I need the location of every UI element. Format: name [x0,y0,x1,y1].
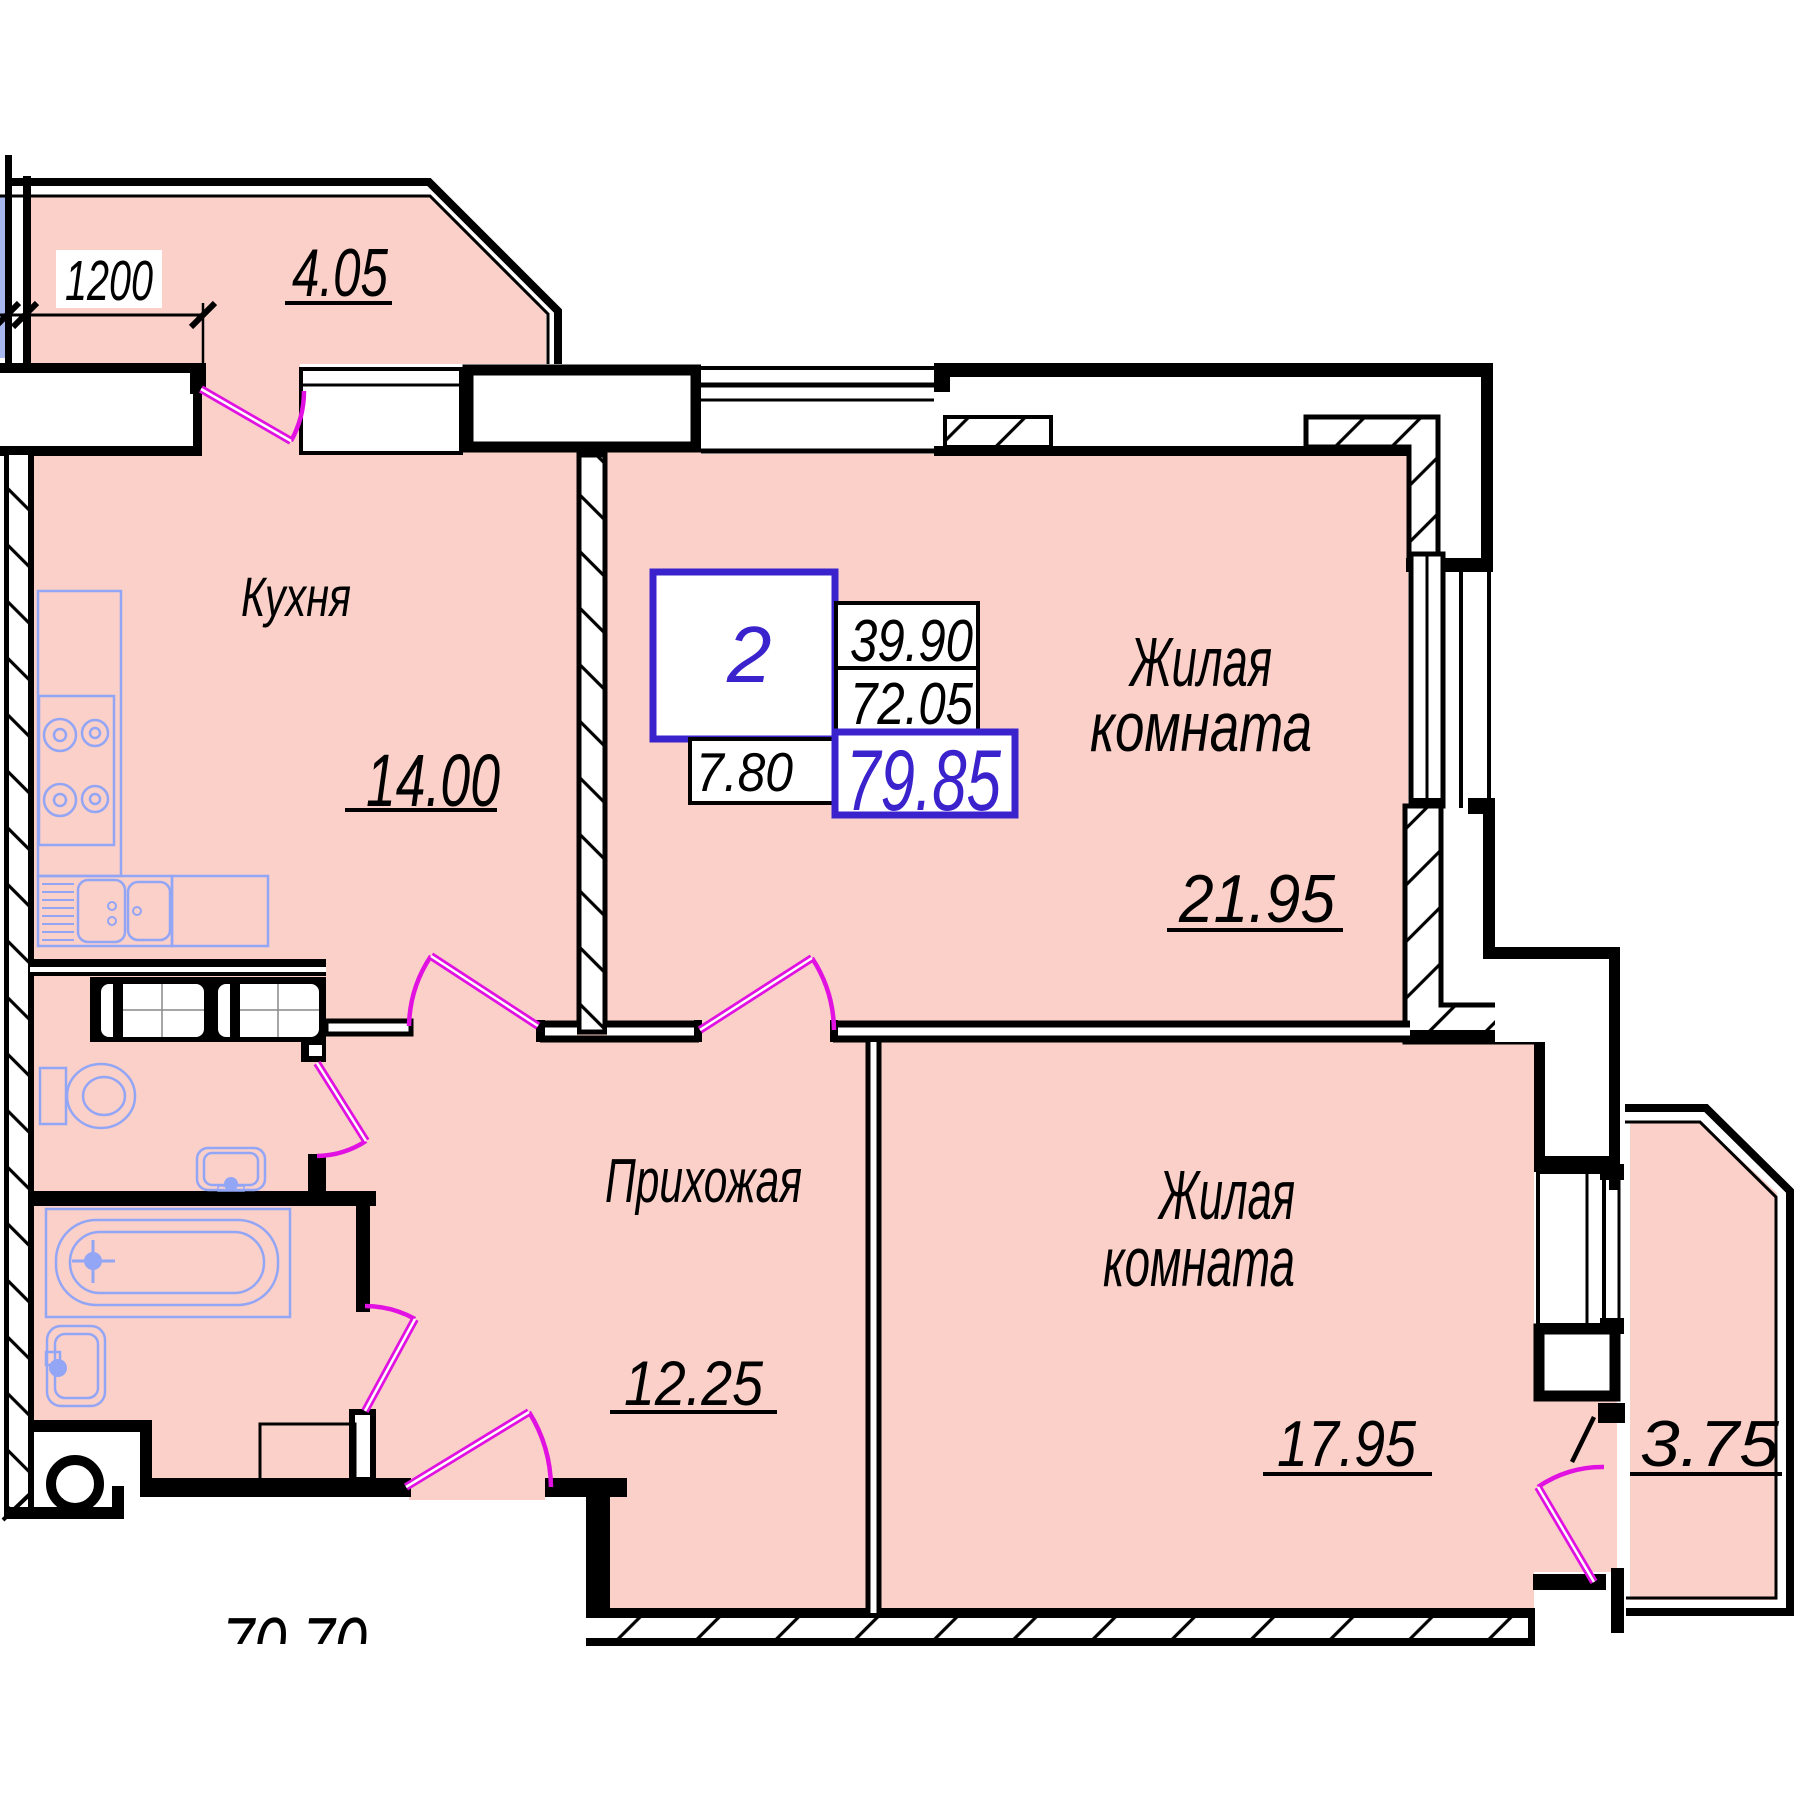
svg-text:3.75: 3.75 [1640,1407,1780,1480]
svg-text:Кухня: Кухня [241,565,351,628]
svg-text:комната: комната [1103,1223,1295,1301]
svg-text:4.05: 4.05 [292,235,388,311]
svg-text:7.80: 7.80 [696,741,793,803]
svg-text:1200: 1200 [65,249,153,313]
svg-text:Прихожая: Прихожая [605,1147,802,1216]
svg-text:79.85: 79.85 [846,733,1002,829]
svg-text:2: 2 [726,610,772,699]
svg-text:72.05: 72.05 [850,671,973,737]
svg-text:17.95: 17.95 [1277,1407,1417,1480]
svg-text:комната: комната [1090,688,1312,766]
svg-text:39.90: 39.90 [850,608,973,674]
svg-text:12.25: 12.25 [624,1349,764,1419]
svg-text:21.95: 21.95 [1178,861,1335,937]
